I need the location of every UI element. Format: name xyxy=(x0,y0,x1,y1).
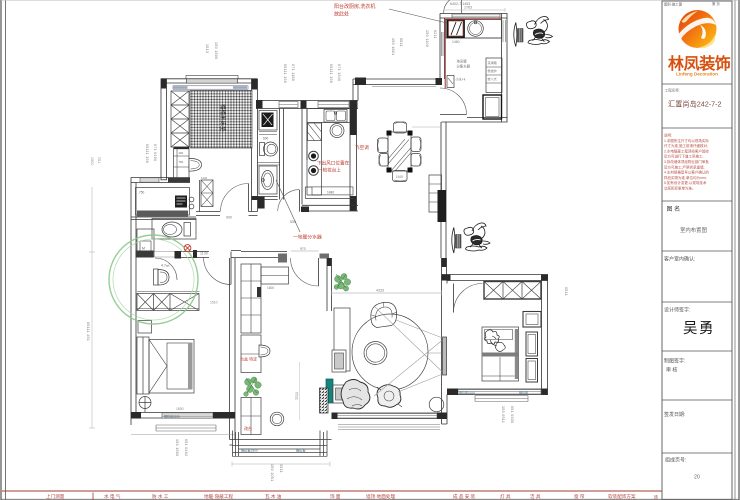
svg-text:1513: 1513 xyxy=(205,44,209,53)
svg-text:嵌入式: 嵌入式 xyxy=(488,76,497,81)
svg-text:推拉窗1500: 推拉窗1500 xyxy=(164,413,180,418)
svg-text:0811: 0811 xyxy=(399,38,403,47)
svg-text:600: 600 xyxy=(263,137,269,141)
svg-text:05111 150: 05111 150 xyxy=(145,144,149,163)
svg-text:05111 150: 05111 150 xyxy=(329,64,333,83)
svg-text:550: 550 xyxy=(290,220,296,224)
svg-text:1500: 1500 xyxy=(90,157,94,166)
svg-text:05111 150: 05111 150 xyxy=(283,64,287,83)
svg-text:后方可施工,严禁拆承重墙;: 后方可施工,严禁拆承重墙; xyxy=(664,164,704,169)
svg-text:071 1180: 071 1180 xyxy=(291,64,295,81)
svg-text:0511: 0511 xyxy=(279,464,283,473)
svg-text:4.7㎡: 4.7㎡ xyxy=(161,263,170,268)
svg-text:150 1500: 150 1500 xyxy=(175,439,179,456)
svg-text:推拉窗: 推拉窗 xyxy=(519,389,528,394)
svg-text:1510: 1510 xyxy=(210,301,218,305)
svg-text:150 1500: 150 1500 xyxy=(214,42,218,59)
svg-text:飞空调: 飞空调 xyxy=(355,144,369,151)
svg-text:样品实物为准,单位均为mm;: 样品实物为准,单位均为mm; xyxy=(664,175,707,180)
svg-text:水 电 气: 水 电 气 xyxy=(104,493,121,499)
svg-text:瓦 木 油: 瓦 木 油 xyxy=(265,493,282,500)
svg-text:放此处: 放此处 xyxy=(334,11,349,18)
svg-text:小水+k: 小水+k xyxy=(456,77,466,82)
svg-text:1465: 1465 xyxy=(396,175,404,179)
svg-text:1600: 1600 xyxy=(267,286,274,290)
svg-text:上门测量: 上门测量 xyxy=(46,493,65,500)
svg-text:1800: 1800 xyxy=(176,407,184,411)
svg-text:林凤装饰: 林凤装饰 xyxy=(668,54,731,73)
svg-text:4333: 4333 xyxy=(376,289,384,293)
svg-text:软装配饰方案: 软装配饰方案 xyxy=(608,493,636,500)
svg-text:750: 750 xyxy=(139,191,145,195)
svg-text:窗 帘: 窗 帘 xyxy=(574,493,585,500)
svg-text:M: M xyxy=(142,247,145,251)
svg-text:1130: 1130 xyxy=(200,252,208,256)
svg-text:Linfeng Decoration: Linfeng Decoration xyxy=(676,72,718,77)
svg-text:6402-7 1453: 6402-7 1453 xyxy=(450,2,470,6)
svg-text:后方可进行下道工序施工;: 后方可进行下道工序施工; xyxy=(664,154,703,159)
svg-text:推拉窗1800: 推拉窗1800 xyxy=(241,448,258,453)
svg-text:饰: 饰 xyxy=(654,494,658,500)
svg-text:1763: 1763 xyxy=(464,6,472,10)
svg-text:1480: 1480 xyxy=(327,191,334,195)
svg-text:051 0330: 051 0330 xyxy=(510,406,514,423)
svg-text:改台: 改台 xyxy=(244,425,252,431)
svg-text:防 水 工: 防 水 工 xyxy=(152,493,169,500)
svg-text:洁 具: 洁 具 xyxy=(530,493,541,500)
svg-text:一地暖分水器: 一地暖分水器 xyxy=(293,234,322,241)
svg-text:客户室内确认:: 客户室内确认: xyxy=(664,256,695,263)
svg-text:推拉窗: 推拉窗 xyxy=(296,448,306,453)
svg-text:尺寸为准,施工前请仔细核对;: 尺寸为准,施工前请仔细核对; xyxy=(664,143,708,148)
svg-text:970: 970 xyxy=(300,247,306,251)
svg-text:分集水器: 分集水器 xyxy=(457,64,471,69)
svg-text:第 页: 第 页 xyxy=(712,1,720,6)
svg-text:051: 051 xyxy=(97,157,101,164)
svg-text:签发日期:: 签发日期: xyxy=(664,411,685,418)
svg-text:5.如有设计变更,以现场技术: 5.如有设计变更,以现场技术 xyxy=(664,180,707,185)
svg-text:071 1540: 071 1540 xyxy=(337,64,341,81)
svg-text:900: 900 xyxy=(226,216,232,220)
svg-text:灯 具: 灯 具 xyxy=(500,493,511,500)
svg-text:05111 451: 05111 451 xyxy=(86,322,90,341)
svg-text:推拉窗2100: 推拉窗2100 xyxy=(459,389,475,394)
svg-text:阳台改厨房,洗衣机: 阳台改厨房,洗衣机 xyxy=(334,3,375,10)
svg-text:下出风口位置在: 下出风口位置在 xyxy=(317,160,350,167)
svg-text:2.水电隐蔽工程须经客户验收: 2.水电隐蔽工程须经客户验收 xyxy=(664,148,709,153)
svg-text:150 1051: 150 1051 xyxy=(270,464,274,481)
svg-text:4.主材规格型号以客户确认的: 4.主材规格型号以客户确认的 xyxy=(664,170,709,175)
svg-text:071 0150: 071 0150 xyxy=(153,144,157,161)
svg-text:蒸烤箱: 蒸烤箱 xyxy=(488,60,497,65)
svg-text:榻榻米床垫: 榻榻米床垫 xyxy=(219,104,227,132)
svg-text:0511: 0511 xyxy=(564,287,568,296)
svg-text:750: 750 xyxy=(179,160,184,164)
svg-text:1.本图所注尺寸均以现场实际: 1.本图所注尺寸均以现场实际 xyxy=(664,138,709,143)
svg-text:图别·施工图: 图别·施工图 xyxy=(664,2,683,7)
svg-text:说明:: 说明: xyxy=(664,133,672,138)
svg-text:150 1100: 150 1100 xyxy=(425,30,429,47)
svg-text:微波炉: 微波炉 xyxy=(488,68,497,73)
svg-text:一梳妆台上: 一梳妆台上 xyxy=(318,167,341,174)
svg-text:室内布置图: 室内布置图 xyxy=(680,226,707,234)
svg-text:工程名称:: 工程名称: xyxy=(665,88,680,93)
svg-text:制图签字:: 制图签字: xyxy=(664,358,685,365)
svg-text:饰 面: 饰 面 xyxy=(330,493,341,500)
svg-text:墙顶·地面处理: 墙顶·地面处理 xyxy=(366,493,395,500)
svg-text:0211: 0211 xyxy=(433,30,437,39)
svg-text:150 1801: 150 1801 xyxy=(391,38,395,55)
svg-text:400: 400 xyxy=(179,151,184,155)
svg-text:150 0511: 150 0511 xyxy=(501,406,505,423)
svg-text:设计师签字:: 设计师签字: xyxy=(664,307,690,314)
svg-text:图 名: 图 名 xyxy=(667,205,681,213)
svg-text:台盆 待定: 台盆 待定 xyxy=(240,356,257,362)
svg-text:成 品 安 装: 成 品 安 装 xyxy=(453,493,476,500)
svg-text:051 0462: 051 0462 xyxy=(184,439,188,456)
svg-text:审 核: 审 核 xyxy=(666,367,677,374)
svg-text:地暖·隐蔽工程: 地暖·隐蔽工程 xyxy=(204,493,233,500)
svg-text:20: 20 xyxy=(694,475,700,481)
svg-text:1200: 1200 xyxy=(201,176,208,180)
svg-text:1460: 1460 xyxy=(452,40,460,44)
svg-text:吴勇: 吴勇 xyxy=(683,320,715,337)
svg-text:地采暖: 地采暖 xyxy=(457,59,468,64)
svg-text:0511: 0511 xyxy=(295,392,299,400)
svg-text:汇置尚岛242-7-2: 汇置尚岛242-7-2 xyxy=(668,100,722,109)
svg-text:3.拆改墙体须经物业部门审批: 3.拆改墙体须经物业部门审批 xyxy=(664,159,709,164)
svg-text:组成页号:: 组成页号: xyxy=(665,457,686,464)
svg-text:交底和变更单为准。: 交底和变更单为准。 xyxy=(664,186,696,191)
